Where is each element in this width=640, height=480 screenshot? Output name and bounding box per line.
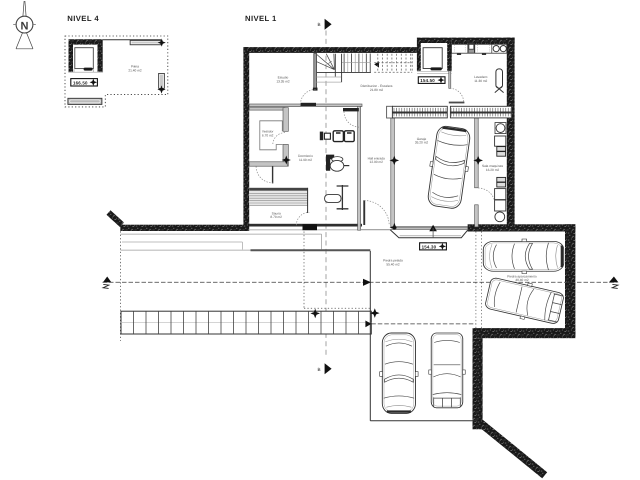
svg-text:21.80 m2: 21.80 m2 [370, 88, 384, 92]
svg-text:NIVEL 1: NIVEL 1 [245, 14, 277, 23]
svg-text:35.20 m2: 35.20 m2 [415, 141, 429, 145]
svg-text:11.30 m2: 11.30 m2 [474, 79, 487, 83]
svg-text:11.90 m2: 11.90 m2 [299, 158, 312, 162]
svg-text:NIVEL 4: NIVEL 4 [67, 14, 99, 23]
svg-text:40.40 m2: 40.40 m2 [515, 278, 529, 282]
svg-text:13.35 m2: 13.35 m2 [276, 79, 290, 83]
svg-text:B: B [318, 22, 321, 27]
svg-text:12.90 m2: 12.90 m2 [370, 160, 384, 164]
svg-text:154.50: 154.50 [420, 78, 435, 83]
svg-text:166.50: 166.50 [73, 80, 88, 85]
svg-text:16.20 m2: 16.20 m2 [486, 168, 500, 172]
svg-text:21.40 m2: 21.40 m2 [128, 68, 142, 72]
svg-text:55.40 m2: 55.40 m2 [386, 262, 400, 266]
svg-text:154.30: 154.30 [422, 245, 437, 250]
svg-text:N: N [21, 20, 29, 32]
svg-text:B: B [318, 367, 321, 372]
svg-text:8.70 m2: 8.70 m2 [270, 215, 282, 219]
svg-text:6.70 m2: 6.70 m2 [262, 133, 274, 137]
